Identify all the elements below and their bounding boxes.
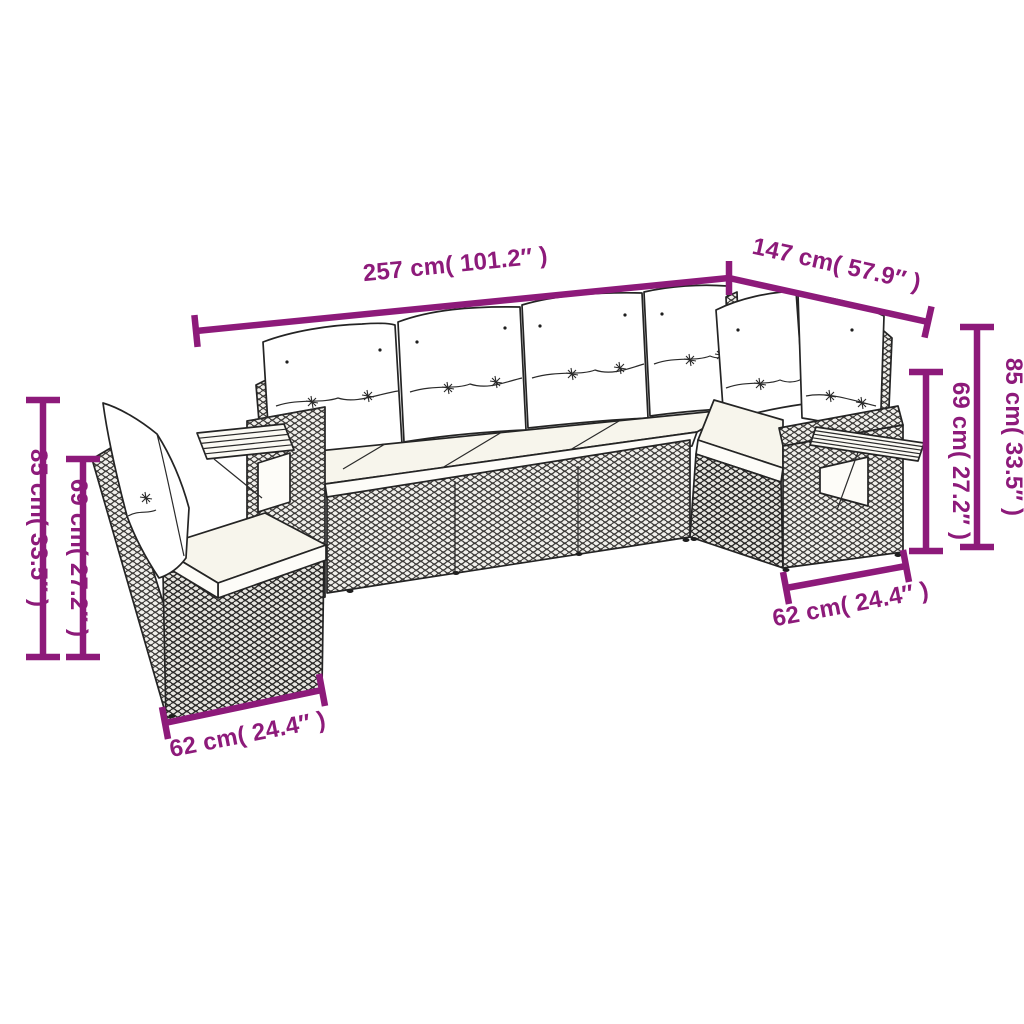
dimension-right-back-height-label: 85 cm( 33.5″ ) [1000,358,1024,516]
dimension-left-arm-height-label: 69 cm( 27.2″ ) [65,479,92,637]
product-dimension-diagram: 257 cm( 101.2″ ) 147 cm( 57.9″ ) 85 cm( … [0,0,1024,1024]
back-cushion-3 [522,293,648,428]
dimension-top-width-label: 257 cm( 101.2″ ) [362,242,549,287]
dimension-right-arm-height-label: 69 cm( 27.2″ ) [947,382,974,540]
back-cushion-5 [716,291,804,422]
dimension-left-back-height-label: 85 cm( 33.5″ ) [25,449,52,607]
dimension-right-arm-height: 69 cm( 27.2″ ) [909,372,974,551]
back-cushion-2 [398,307,526,442]
right-corner-section [690,291,924,572]
sofa-illustration [92,285,924,722]
left-arm-pocket [258,453,290,512]
dimension-left-back-height: 85 cm( 33.5″ ) [25,400,60,657]
dimension-left-arm-height: 69 cm( 27.2″ ) [65,459,100,657]
main-sofa-section [256,285,741,593]
